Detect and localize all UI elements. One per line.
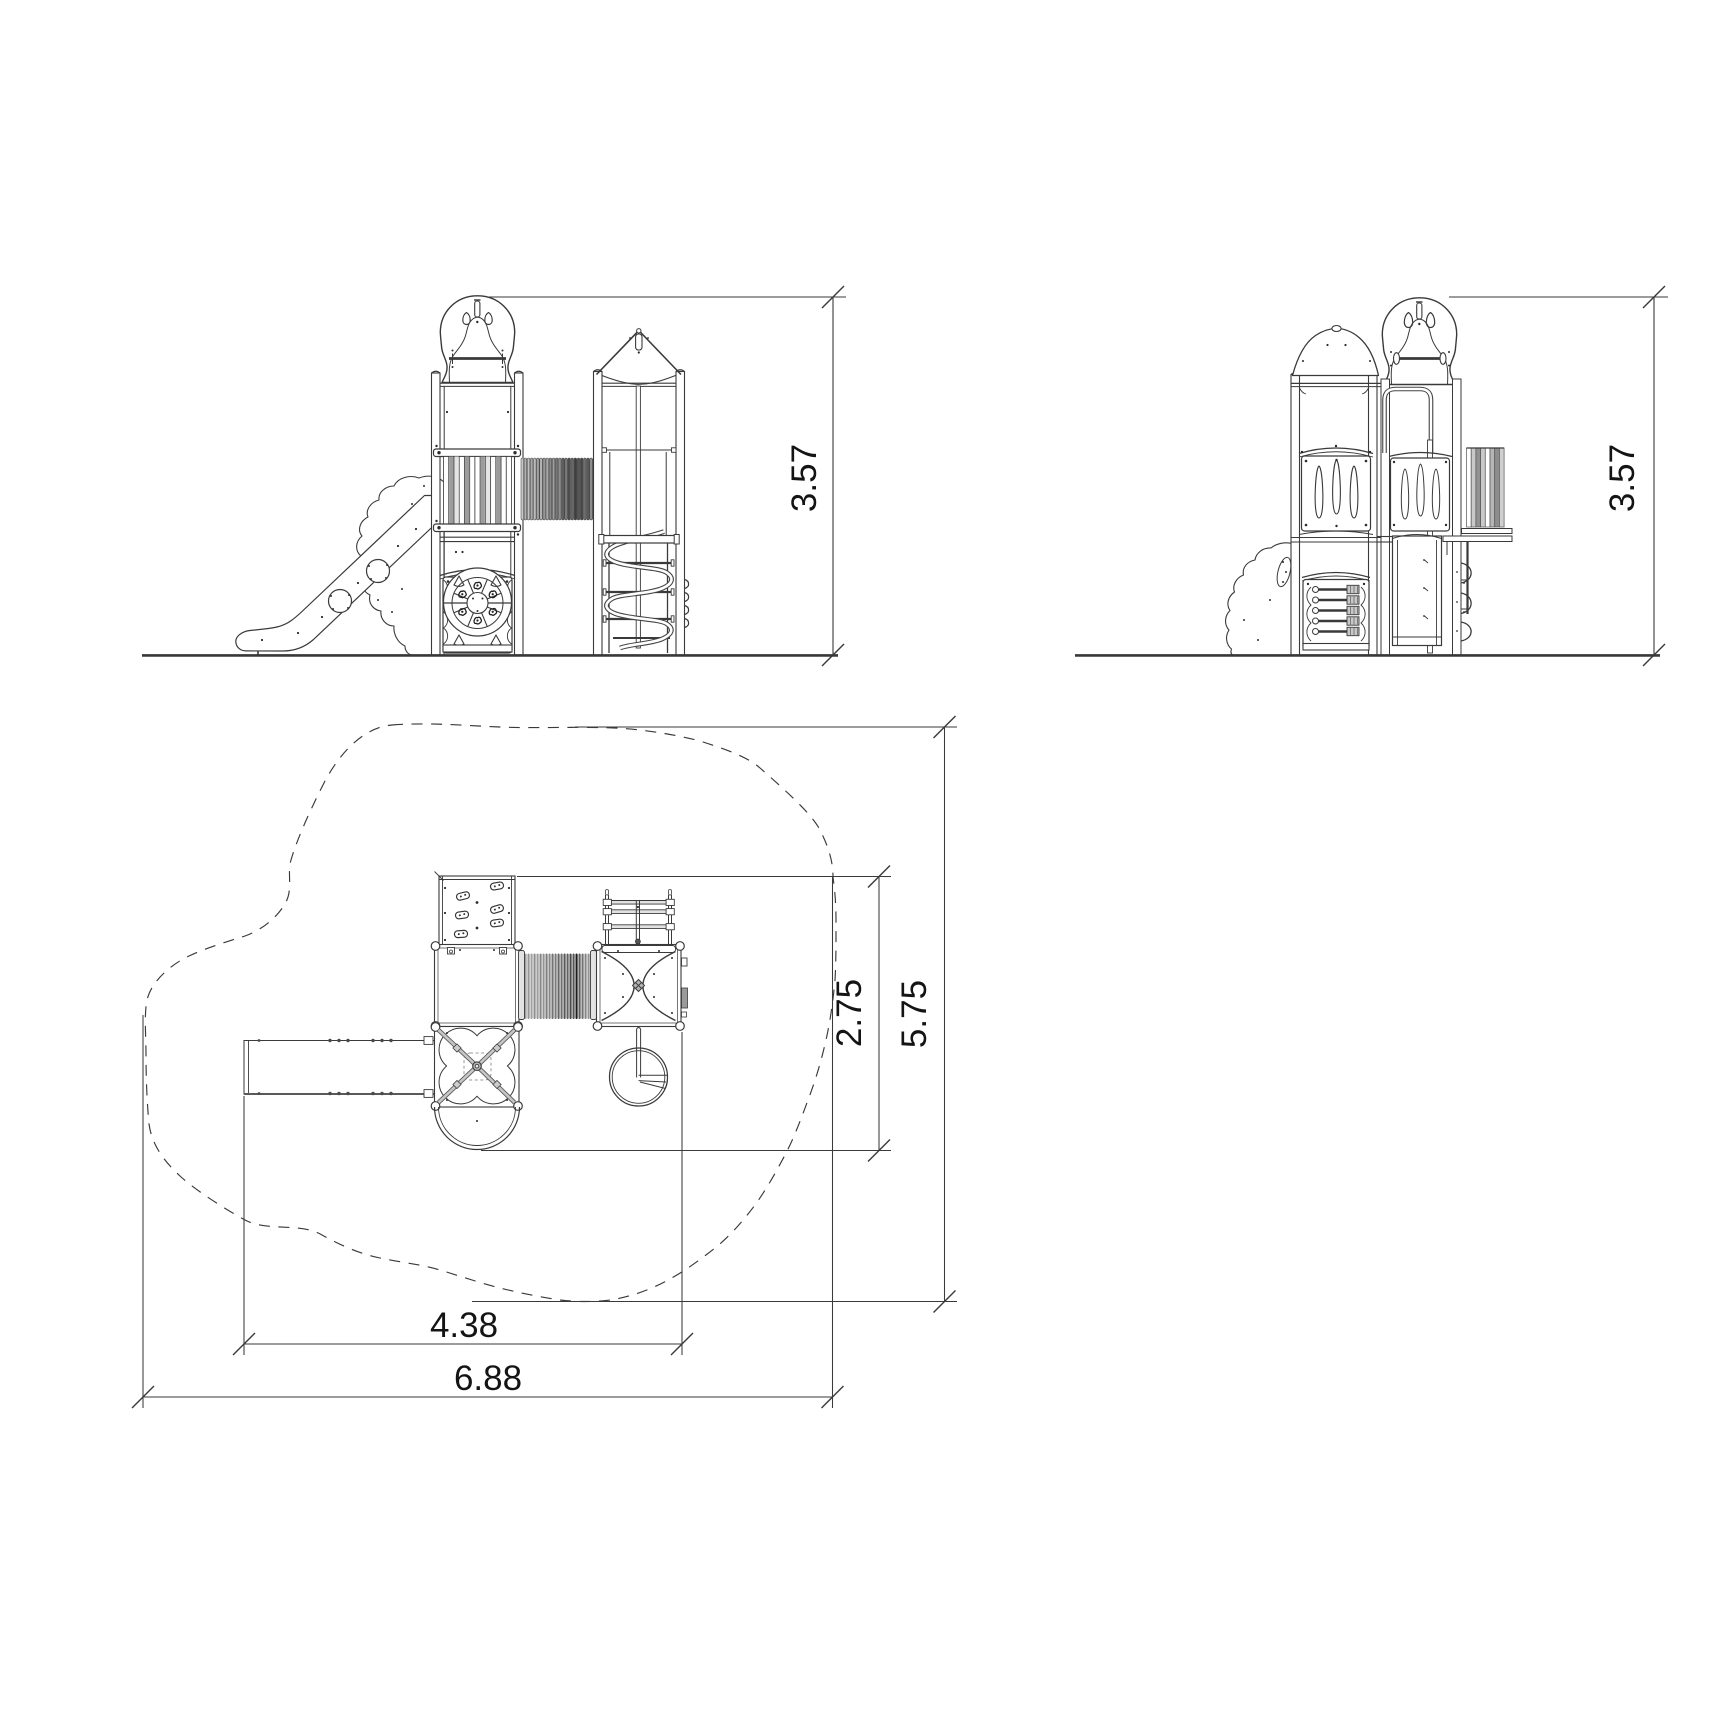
- svg-text:2.75: 2.75: [830, 979, 869, 1047]
- svg-text:6.88: 6.88: [454, 1359, 522, 1398]
- svg-text:3.57: 3.57: [1603, 444, 1642, 512]
- svg-text:3.57: 3.57: [785, 444, 824, 512]
- svg-text:4.38: 4.38: [430, 1306, 498, 1345]
- svg-text:5.75: 5.75: [895, 980, 934, 1048]
